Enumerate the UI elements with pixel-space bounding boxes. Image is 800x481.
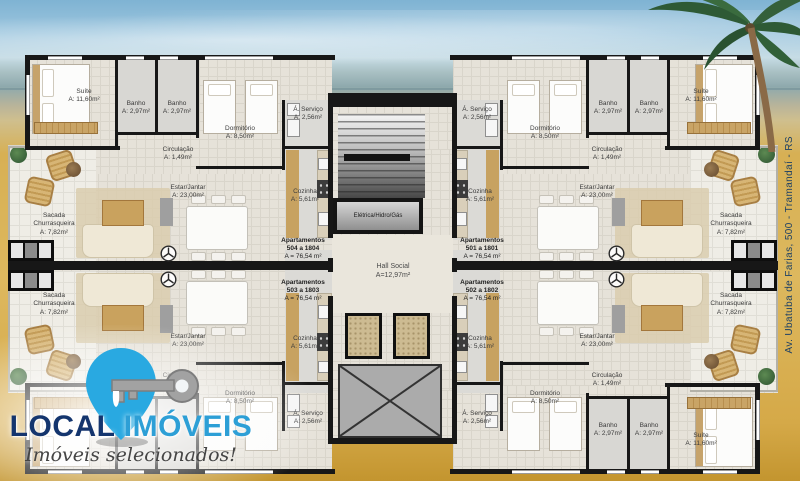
- furniture-table: [537, 206, 599, 250]
- wall: [117, 132, 197, 135]
- room-label: SacadaChurrasqueiraA: 7,82m²: [33, 212, 74, 237]
- room-label: SacadaChurrasqueiraA: 7,82m²: [710, 292, 751, 317]
- furniture-tvc: [160, 198, 173, 226]
- room-label: Á. ServiçoA: 2,56m²: [293, 106, 323, 123]
- window: [703, 470, 737, 474]
- room-label: BanhoA: 2,97m²: [594, 422, 622, 439]
- room-label: BanhoA: 2,97m²: [594, 100, 622, 117]
- wall: [453, 146, 501, 149]
- ceiling-fan-icon: [608, 271, 625, 288]
- window: [26, 75, 30, 115]
- wall: [284, 146, 332, 149]
- room-label: BanhoA: 2,97m²: [635, 422, 663, 439]
- furniture-tvc: [612, 198, 625, 226]
- room-label: SacadaChurrasqueiraA: 7,82m²: [710, 212, 751, 237]
- furniture-sofa: [631, 273, 703, 307]
- room-label: Estar/JantarA: 23,00m²: [579, 184, 614, 201]
- room-label: CozinhaA: 5,61m²: [466, 188, 494, 205]
- wall: [627, 397, 630, 473]
- room-label: Estar/JantarA: 23,00m²: [170, 184, 205, 201]
- wall: [328, 93, 457, 107]
- room-label: CirculaçãoA: 1,49m²: [592, 146, 623, 163]
- window: [512, 56, 580, 60]
- furniture-chair: [579, 252, 594, 261]
- bbq-grill: [731, 270, 777, 291]
- room-label: SacadaChurrasqueiraA: 7,82m²: [33, 292, 74, 317]
- wall: [196, 58, 199, 138]
- furniture-table: [186, 281, 248, 325]
- ceiling-fan-icon: [608, 245, 625, 262]
- wall: [586, 58, 589, 138]
- room-label: Á. ServiçoA: 2,56m²: [462, 410, 492, 427]
- stairwell: [338, 114, 425, 198]
- furniture-table: [186, 206, 248, 250]
- furniture-seat: [729, 175, 761, 207]
- furniture-ward: [34, 122, 98, 134]
- furniture-chair: [191, 252, 206, 261]
- bbq-grill: [731, 240, 777, 261]
- logo-tagline: Imóveis selecionados!: [0, 444, 262, 466]
- palm-tree-icon: [620, 0, 800, 152]
- wall: [665, 383, 760, 387]
- ceiling-fan-icon: [160, 271, 177, 288]
- furniture-sofa: [82, 273, 154, 307]
- furniture-chair: [559, 195, 574, 204]
- furniture-chair: [539, 252, 554, 261]
- window: [512, 470, 580, 474]
- bbq-grill: [8, 270, 54, 291]
- furniture-chair: [231, 252, 246, 261]
- utility-room-label: Elétrica/Hidro/Gás: [354, 213, 403, 219]
- window: [641, 470, 659, 474]
- wall: [586, 393, 589, 473]
- wall: [455, 261, 778, 270]
- unit-label: Apartamentos502 a 1802A = 76,54 m²: [460, 279, 504, 303]
- wall: [500, 100, 503, 170]
- room-label: CozinhaA: 5,61m²: [466, 335, 494, 352]
- room-label: CozinhaA: 5,61m²: [291, 188, 319, 205]
- furniture-bush: [704, 354, 719, 369]
- furniture-plant: [758, 368, 775, 385]
- window: [126, 56, 144, 60]
- utility-room: Elétrica/Hidro/Gás: [333, 198, 423, 234]
- room-label: BanhoA: 2,97m²: [122, 100, 150, 117]
- unit-label: Apartamentos503 a 1803A = 76,54 m²: [281, 279, 325, 303]
- room-label: DormitórioA: 8,50m²: [530, 125, 560, 142]
- unit-label: Apartamentos501 a 1801A = 76,54 m²: [460, 237, 504, 261]
- furniture-chair: [539, 195, 554, 204]
- furniture-seat: [729, 323, 761, 355]
- wall: [588, 396, 668, 399]
- furniture-seat: [23, 175, 55, 207]
- hall-social-label: Hall Social A=12,97m²: [376, 262, 410, 281]
- wall: [500, 166, 589, 169]
- balcony-railing: [690, 390, 778, 392]
- furniture-table: [537, 281, 599, 325]
- furniture-chair: [211, 195, 226, 204]
- furniture-chair: [559, 270, 574, 279]
- logo-title-imoveis: IMÓVEIS: [124, 410, 253, 443]
- furniture-sofa: [631, 224, 703, 258]
- wall: [196, 166, 285, 169]
- logo-title-local: LOCAL: [10, 410, 115, 443]
- room-label: CirculaçãoA: 1,49m²: [592, 372, 623, 389]
- furniture-sofa: [82, 224, 154, 258]
- room-label: DormitórioA: 8,50m²: [530, 390, 560, 407]
- furniture-ctable: [102, 200, 144, 226]
- room-label: Á. ServiçoA: 2,56m²: [462, 106, 492, 123]
- furniture-ctable: [641, 305, 683, 331]
- wall: [500, 361, 503, 431]
- furniture-chair: [231, 195, 246, 204]
- room-label: Estar/JantarA: 23,00m²: [579, 333, 614, 350]
- furniture-ward: [687, 397, 751, 409]
- furniture-chair: [579, 270, 594, 279]
- wall: [453, 382, 501, 385]
- shaft-cross-icon: [340, 366, 440, 436]
- wall: [328, 296, 333, 444]
- room-label: SuíteA: 11,60m²: [68, 88, 99, 105]
- furniture-chair: [191, 270, 206, 279]
- furniture-chair: [231, 270, 246, 279]
- logo-title: LOCAL IMÓVEIS: [0, 410, 262, 444]
- logo: LOCAL IMÓVEIS Imóveis selecionados!: [0, 338, 270, 478]
- wall: [25, 146, 120, 150]
- room-label: CirculaçãoA: 1,49m²: [163, 146, 194, 163]
- room-label: DormitórioA: 8,50m²: [225, 125, 255, 142]
- furniture-chair: [539, 327, 554, 336]
- elevator-cab: [393, 313, 430, 359]
- unit-label: Apartamentos504 a 1804A = 76,54 m²: [281, 237, 325, 261]
- wall: [155, 58, 158, 134]
- address-text: Av. Ubatuba de Farias, 500 - Tramandaí -…: [784, 136, 795, 353]
- furniture-chair: [539, 270, 554, 279]
- furniture-chair: [559, 327, 574, 336]
- window: [607, 470, 625, 474]
- window: [160, 56, 178, 60]
- wall: [500, 362, 589, 365]
- furniture-chair: [559, 252, 574, 261]
- bbq-grill: [8, 240, 54, 261]
- furniture-ctable: [641, 200, 683, 226]
- room-label: SuíteA: 11,60m²: [685, 432, 716, 449]
- furniture-chair: [211, 252, 226, 261]
- floor-plan-image: Elétrica/Hidro/Gás Hall Social A=12,97m²…: [0, 0, 800, 481]
- ceiling-fan-icon: [160, 245, 177, 262]
- wall: [282, 100, 285, 170]
- window: [48, 56, 82, 60]
- wall: [452, 105, 457, 238]
- window: [205, 56, 273, 60]
- furniture-chair: [211, 270, 226, 279]
- furniture-bush: [704, 162, 719, 177]
- wall: [452, 296, 457, 444]
- window: [756, 400, 760, 440]
- furniture-bush: [66, 162, 81, 177]
- wall: [8, 261, 330, 270]
- room-label: BanhoA: 2,97m²: [163, 100, 191, 117]
- elevator-cab: [345, 313, 382, 359]
- furniture-tvc: [612, 305, 625, 333]
- elevator-shaft: [338, 364, 442, 438]
